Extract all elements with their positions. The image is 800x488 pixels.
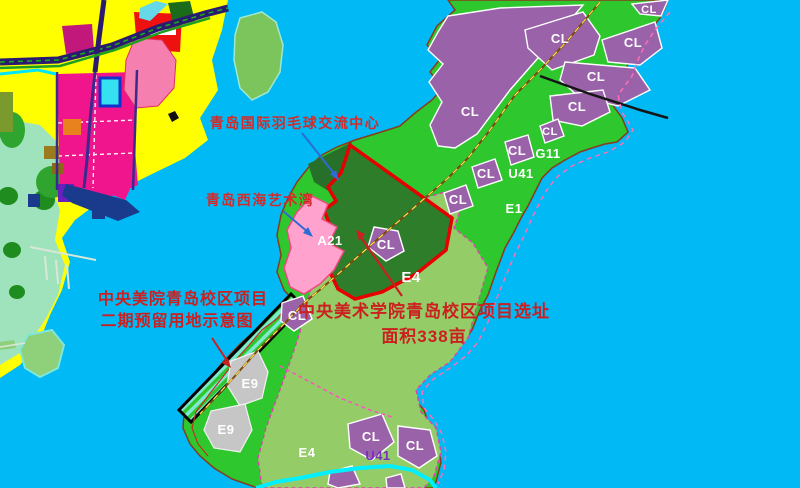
olive-strip — [0, 92, 13, 132]
map-canvas: CL CL CL CL CL CL CL CL CL CL CL CL CL C… — [0, 0, 800, 488]
zone-label-cl: CL — [624, 35, 642, 50]
label-art-bay: 青岛西海艺术湾 — [206, 192, 315, 208]
label-phase2-line1: 中央美院青岛校区项目 — [98, 289, 268, 308]
zone-label-cl: CL — [641, 4, 657, 16]
zone-label-cl: CL — [508, 143, 526, 158]
zone-label-cl: CL — [406, 438, 424, 453]
planning-map: CL CL CL CL CL CL CL CL CL CL CL CL CL C… — [0, 0, 800, 488]
pier-block — [92, 208, 105, 219]
zone-label-e4: E4 — [401, 269, 421, 286]
zone-label-e1: E1 — [506, 201, 523, 216]
zone-label-u41: U41 — [508, 166, 533, 181]
orange-block — [63, 119, 81, 135]
zone-label-cl: CL — [449, 192, 467, 207]
tree-blob — [3, 242, 21, 258]
zone-label-g11: G11 — [535, 146, 560, 161]
zone-label-e9: E9 — [218, 422, 235, 437]
zone-label-cl: CL — [542, 126, 558, 138]
label-site-line2: 面积338亩 — [381, 326, 466, 346]
pier-block — [28, 194, 40, 207]
zone-label-u41: U41 — [365, 448, 390, 463]
label-badminton-center: 青岛国际羽毛球交流中心 — [210, 115, 381, 131]
label-site-line1: 中央美术学院青岛校区项目选址 — [298, 301, 550, 321]
label-phase2-line2: 二期预留用地示意图 — [100, 311, 253, 330]
zone-label-cl: CL — [377, 237, 395, 252]
zone-label-e9: E9 — [242, 376, 259, 391]
zone-label-cl: CL — [477, 166, 495, 181]
zone-label-cl: CL — [568, 99, 586, 114]
blue-canal-block — [100, 78, 120, 106]
zone-label-cl: CL — [461, 104, 479, 119]
zone-label-e4: E4 — [299, 445, 316, 460]
zone-label-cl: CL — [362, 429, 380, 444]
zone-label-cl: CL — [551, 31, 569, 46]
zone-label-a21: A21 — [317, 233, 342, 248]
zone-label-cl: CL — [587, 69, 605, 84]
tree-blob — [9, 285, 25, 299]
